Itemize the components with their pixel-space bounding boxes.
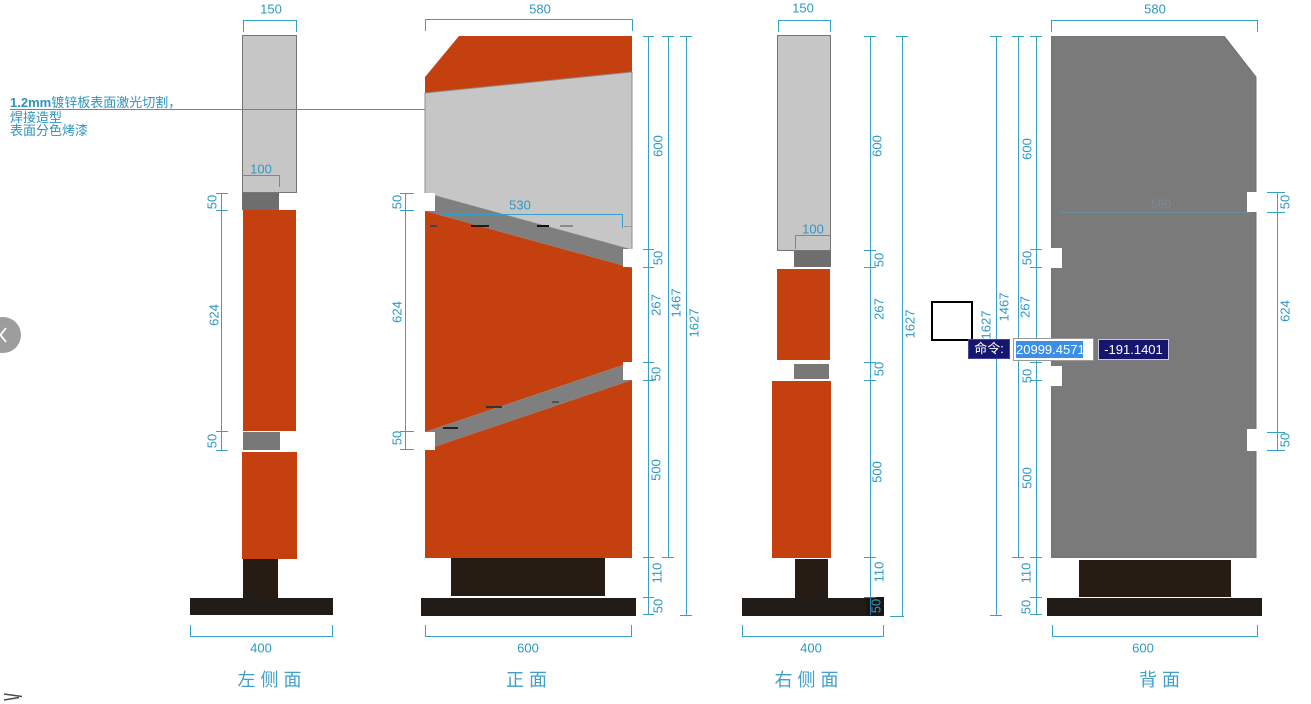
- svg-text:580: 580: [1151, 197, 1171, 211]
